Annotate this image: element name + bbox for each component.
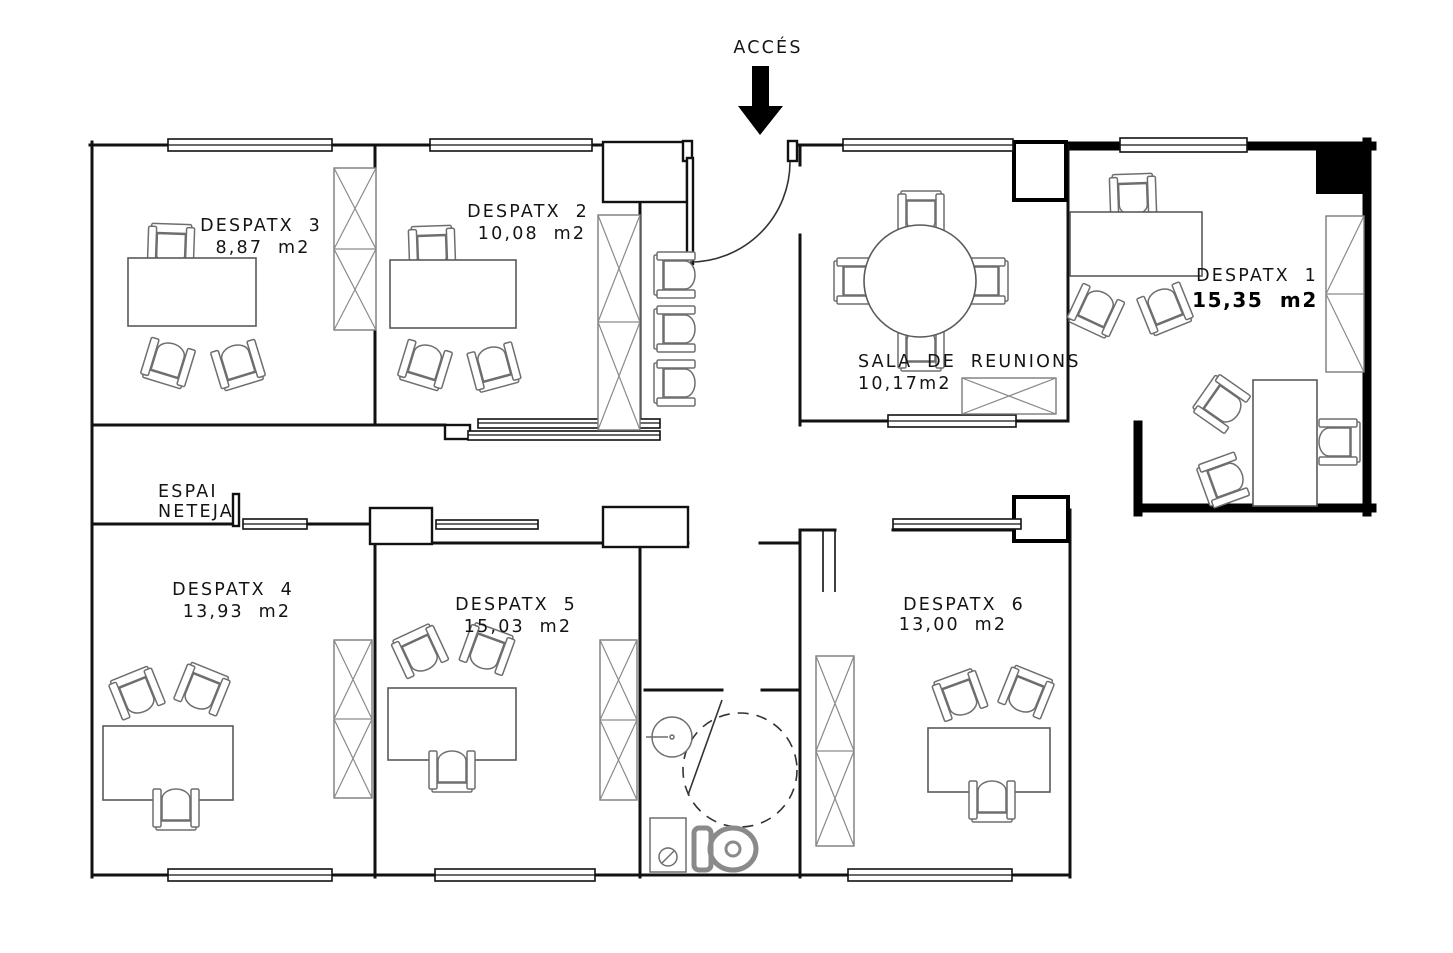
desk <box>1070 212 1202 276</box>
corner-pillar <box>1316 146 1368 194</box>
office-chair <box>1109 173 1156 216</box>
despatx4-name: DESPATX 4 <box>172 580 294 600</box>
visitor-chair <box>210 339 266 392</box>
office-chair <box>1319 419 1360 465</box>
corridor-pillar-1 <box>370 508 432 544</box>
espai-neteja-line1: ESPAI <box>158 482 218 502</box>
toilet <box>694 828 756 870</box>
cabinet <box>334 168 376 330</box>
visitor-chair <box>1195 452 1249 509</box>
despatx3-name: DESPATX 3 <box>200 216 322 236</box>
room-wc <box>646 700 797 872</box>
cabinet <box>816 656 854 846</box>
access-arrow-head <box>738 106 783 135</box>
sala-name: SALA DE REUNIONS <box>858 352 1081 372</box>
waiting-chair <box>654 360 695 406</box>
cabinet <box>600 640 637 800</box>
room-despatx-2 <box>390 215 640 430</box>
office-chair <box>153 789 199 830</box>
entry-door <box>683 141 797 264</box>
room-despatx-3 <box>128 168 376 392</box>
visitor-chair <box>1191 373 1251 434</box>
wardrobe <box>1326 216 1364 372</box>
waiting-chair <box>654 306 695 352</box>
sala-pillar <box>1014 142 1066 200</box>
despatx5-name: DESPATX 5 <box>455 595 577 615</box>
room-despatx-1 <box>1066 173 1364 509</box>
floor-plan-canvas: ACCÉS DESPATX 3 8,87 m2 DESPATX 2 10,08 … <box>0 0 1453 953</box>
desk <box>103 726 233 800</box>
despatx1-area: 15,35 m2 <box>1192 288 1318 312</box>
desk <box>128 258 256 326</box>
espai-neteja-line2: NETEJA <box>158 502 234 522</box>
visitor-chair <box>1137 282 1195 337</box>
visitor-chair <box>174 661 232 716</box>
round-table <box>864 225 976 337</box>
access-label: ACCÉS <box>733 36 802 58</box>
cabinet <box>598 215 640 430</box>
access-marker <box>738 66 783 135</box>
despatx6-name: DESPATX 6 <box>903 595 1025 615</box>
access-arrow-shaft <box>752 66 769 108</box>
visitor-chair <box>998 664 1056 719</box>
side-desk <box>1253 380 1317 506</box>
wc-door-leaf <box>688 700 722 795</box>
room-despatx-5 <box>388 621 637 800</box>
basin-drain <box>670 735 674 739</box>
desk <box>390 260 516 328</box>
despatx2-name: DESPATX 2 <box>467 202 589 222</box>
waiting-chair <box>654 252 695 298</box>
sala-area: 10,17m2 <box>858 374 952 394</box>
entry-pillar <box>603 142 687 202</box>
corridor-pillar-3 <box>1014 497 1068 541</box>
visitor-chair <box>397 339 453 392</box>
despatx2-area: 10,08 m2 <box>478 224 586 244</box>
corridor-pillar-2 <box>603 507 688 547</box>
cabinet <box>334 640 372 798</box>
office-chair <box>969 781 1015 822</box>
sideboard <box>962 378 1056 414</box>
visitor-chair <box>390 622 449 679</box>
visitor-chair <box>107 665 165 720</box>
despatx5-area: 15,03 m2 <box>464 617 572 637</box>
visitor-chair <box>140 337 196 390</box>
despatx6-area: 13,00 m2 <box>899 615 1007 635</box>
entry-door-leaf <box>687 158 693 264</box>
floor-plan-drawing: ACCÉS DESPATX 3 8,87 m2 DESPATX 2 10,08 … <box>0 0 1453 953</box>
despatx1-name: DESPATX 1 <box>1196 266 1318 286</box>
labels: ACCÉS DESPATX 3 8,87 m2 DESPATX 2 10,08 … <box>158 36 1318 637</box>
office-chair <box>429 751 475 792</box>
turning-radius <box>683 713 797 827</box>
visitor-chair <box>1066 283 1125 340</box>
despatx3-area: 8,87 m2 <box>215 238 310 258</box>
desk <box>388 688 516 760</box>
corridor-waiting-area <box>654 252 695 406</box>
room-despatx-6 <box>816 656 1056 846</box>
visitor-chair <box>931 667 988 721</box>
room-despatx-4 <box>103 640 372 830</box>
despatx4-area: 13,93 m2 <box>183 602 291 622</box>
visitor-chair <box>467 342 522 394</box>
